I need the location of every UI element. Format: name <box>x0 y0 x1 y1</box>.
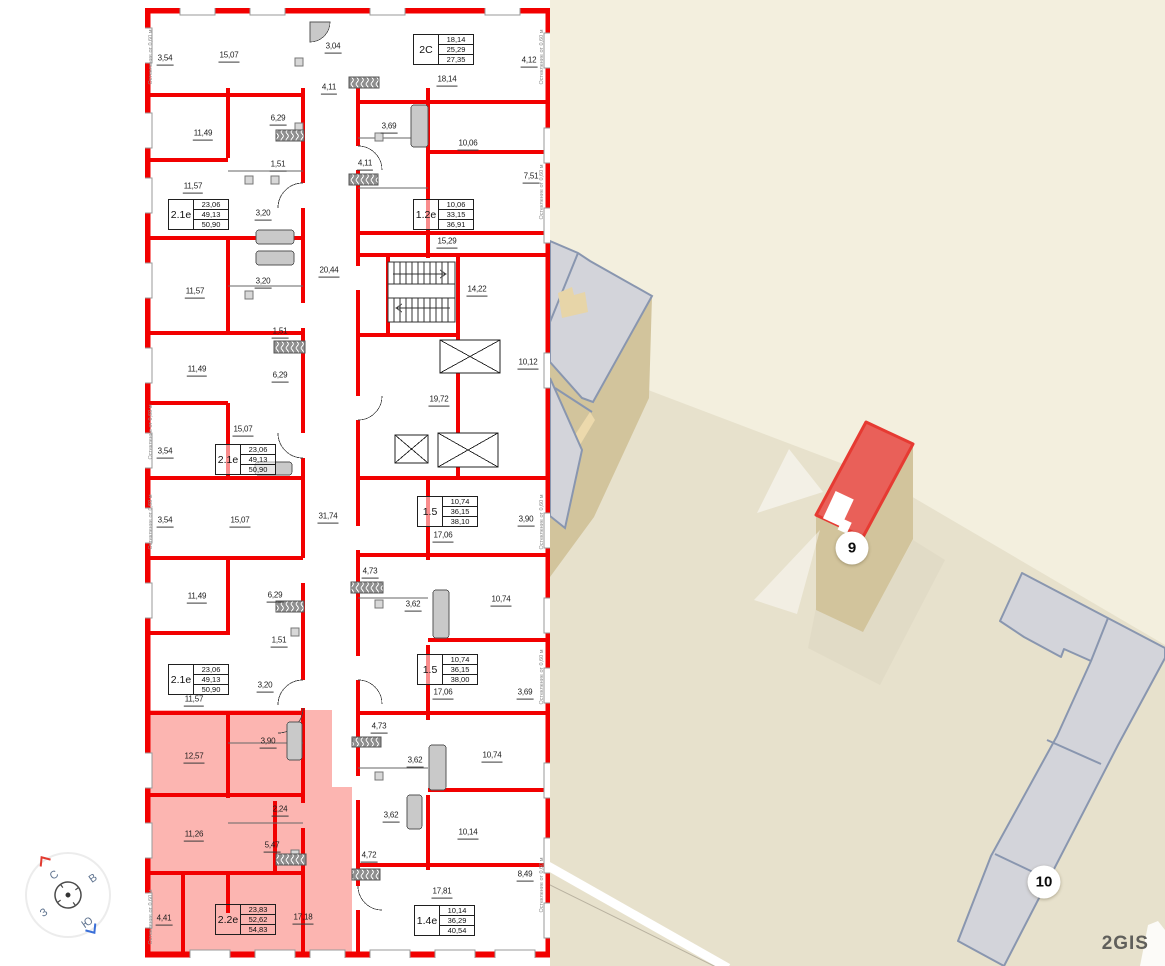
room-area-label: 18,14 <box>436 76 457 87</box>
apartment-areas: 10,7436,1538,00 <box>443 655 477 684</box>
apartment-type-label: 1.5 <box>418 497 443 526</box>
apartment-area-value: 50,90 <box>241 465 275 474</box>
room-area-label: 1,51 <box>272 328 289 339</box>
glazing-note: Остекление от 0,60 м <box>148 30 154 85</box>
apartment-area-value: 25,29 <box>439 45 473 55</box>
room-area-label: 17,06 <box>432 532 453 543</box>
room-area-label: 31,74 <box>317 513 338 524</box>
room-area-label: 3,62 <box>407 757 424 768</box>
glazing-note: Остекление от 0,60 м <box>539 30 545 85</box>
room-area-label: 20,44 <box>318 267 339 278</box>
apartment-area-value: 18,14 <box>439 35 473 45</box>
room-area-label: 1,51 <box>271 637 288 648</box>
apartment-areas: 23,0649,1350,90 <box>241 445 275 474</box>
room-area-label: 4,73 <box>362 568 379 579</box>
map-watermark: 2GIS <box>1102 933 1149 955</box>
room-area-label: 4,72 <box>361 852 378 863</box>
room-area-label: 10,74 <box>481 752 502 763</box>
map-marker-10[interactable]: 10 <box>1028 866 1061 899</box>
compass-rose: С В Ю З <box>10 837 130 957</box>
apartment-area-value: 10,06 <box>439 200 473 210</box>
apartment-area-value: 10,74 <box>443 655 477 665</box>
apartment-type-label: 2.1е <box>169 200 194 229</box>
room-area-label: 4,11 <box>357 160 373 171</box>
stairs <box>388 262 455 322</box>
glazing-note: Остекление от 0,60 м <box>148 890 154 945</box>
room-area-label: 10,12 <box>517 359 538 370</box>
room-area-label: 3,69 <box>517 689 534 700</box>
apartment-area-value: 36,15 <box>443 507 477 517</box>
room-area-label: 5,47 <box>264 842 281 853</box>
room-area-label: 3,90 <box>518 516 535 527</box>
apartment-areas: 10,7436,1538,10 <box>443 497 477 526</box>
room-area-label: 11,57 <box>185 288 205 299</box>
room-area-label: 11,49 <box>187 593 207 604</box>
room-area-label: 6,29 <box>270 115 287 126</box>
glazing-note: Остекление от 0,60 м <box>148 405 154 460</box>
apartment-area-value: 23,06 <box>241 445 275 455</box>
apartment-area-value: 38,10 <box>443 517 477 526</box>
apartment-type-label: 1.2е <box>414 200 439 229</box>
apartment-type-label: 2.1е <box>216 445 241 474</box>
apartment-type-label: 2.1е <box>169 665 194 694</box>
room-area-label: 3,62 <box>383 812 400 823</box>
room-area-label: 17,06 <box>432 689 453 700</box>
room-area-label: 3,69 <box>381 123 398 134</box>
apartment-area-value: 27,35 <box>439 55 473 64</box>
room-area-label: 3,54 <box>157 517 174 528</box>
room-area-label: 3,20 <box>257 682 274 693</box>
apartment-areas: 10,0633,1536,91 <box>439 200 473 229</box>
apartment-area-value: 49,13 <box>241 455 275 465</box>
room-area-label: 6,29 <box>272 372 289 383</box>
room-area-label: 4,11 <box>321 84 337 95</box>
room-area-label: 4,41 <box>156 915 173 926</box>
floorplan-viewer: 3,5415,073,044,1218,144,116,2911,493,691… <box>0 0 1165 966</box>
apartment-spec-table[interactable]: 2.1е23,0649,1350,90 <box>168 199 229 230</box>
room-area-label: 11,57 <box>183 183 203 194</box>
room-area-label: 1,51 <box>270 161 287 172</box>
room-area-label: 3,90 <box>260 738 277 749</box>
room-area-label: 11,26 <box>184 831 204 842</box>
apartment-area-value: 36,29 <box>440 916 474 926</box>
apartment-area-value: 49,13 <box>194 210 228 220</box>
apartment-area-value: 36,91 <box>439 220 473 229</box>
apartment-type-label: 2.2е <box>216 905 241 934</box>
room-area-label: 3,04 <box>325 43 342 54</box>
apartment-areas: 23,0649,1350,90 <box>194 200 228 229</box>
apartment-area-value: 36,15 <box>443 665 477 675</box>
room-area-label: 15,07 <box>229 517 250 528</box>
room-area-label: 8,49 <box>517 871 534 882</box>
map-marker-9[interactable]: 9 <box>836 532 869 565</box>
apartment-area-value: 40,54 <box>440 926 474 935</box>
room-area-label: 17,18 <box>292 914 313 925</box>
apartment-area-value: 49,13 <box>194 675 228 685</box>
room-area-label: 3,20 <box>255 210 272 221</box>
apartment-areas: 18,1425,2927,35 <box>439 35 473 64</box>
room-area-label: 4,12 <box>521 57 538 68</box>
room-area-label: 11,49 <box>187 366 207 377</box>
glazing-note: Остекление от 0,60 м <box>539 650 545 705</box>
room-area-label: 6,29 <box>267 592 284 603</box>
apartment-area-value: 10,74 <box>443 497 477 507</box>
apartment-spec-table[interactable]: 1.2е10,0633,1536,91 <box>413 199 474 230</box>
apartment-spec-table[interactable]: 2.1е23,0649,1350,90 <box>168 664 229 695</box>
apartment-areas: 10,1436,2940,54 <box>440 906 474 935</box>
room-area-label: 11,57 <box>184 696 204 707</box>
apartment-spec-table[interactable]: 2.1е23,0649,1350,90 <box>215 444 276 475</box>
apartment-type-label: 1.5 <box>418 655 443 684</box>
glazing-note: Остекление от 0,60 м <box>539 165 545 220</box>
room-area-label: 15,07 <box>218 52 239 63</box>
apartment-spec-table[interactable]: 2С18,1425,2927,35 <box>413 34 474 65</box>
glazing-note: Остекление от 0,60 м <box>148 495 154 550</box>
apartment-spec-table[interactable]: 1.510,7436,1538,10 <box>417 496 478 527</box>
apartment-area-value: 50,90 <box>194 685 228 694</box>
apartment-spec-table[interactable]: 1.4е10,1436,2940,54 <box>414 905 475 936</box>
room-area-label: 7,51 <box>523 173 540 184</box>
room-area-label: 14,22 <box>466 286 487 297</box>
apartment-area-value: 38,00 <box>443 675 477 684</box>
room-area-label: 4,73 <box>371 723 388 734</box>
room-area-label: 3,54 <box>157 448 174 459</box>
room-area-label: 10,74 <box>490 596 511 607</box>
glazing-note: Остекление от 0,60 м <box>539 858 545 913</box>
apartment-area-value: 52,62 <box>241 915 275 925</box>
room-area-label: 3,62 <box>405 601 422 612</box>
room-area-label: 17,81 <box>431 888 452 899</box>
apartment-spec-table[interactable]: 1.510,7436,1538,00 <box>417 654 478 685</box>
apartment-area-value: 23,06 <box>194 665 228 675</box>
room-area-label: 11,49 <box>193 130 213 141</box>
apartment-type-label: 2С <box>414 35 439 64</box>
glazing-note: Остекление от 0,60 м <box>539 495 545 550</box>
apartment-areas: 23,8352,6254,83 <box>241 905 275 934</box>
apartment-area-value: 33,15 <box>439 210 473 220</box>
room-area-label: 2,24 <box>272 806 289 817</box>
floorplan-canvas <box>145 8 551 958</box>
apartment-type-label: 1.4е <box>415 906 440 935</box>
room-area-label: 10,06 <box>457 140 478 151</box>
room-area-label: 15,29 <box>436 238 457 249</box>
apartment-area-value: 23,06 <box>194 200 228 210</box>
apartment-areas: 23,0649,1350,90 <box>194 665 228 694</box>
apartment-area-value: 10,14 <box>440 906 474 916</box>
apartment-spec-table[interactable]: 2.2е23,8352,6254,83 <box>215 904 276 935</box>
room-area-label: 15,07 <box>232 426 253 437</box>
map-canvas[interactable] <box>550 0 1165 966</box>
room-area-label: 3,54 <box>157 55 174 66</box>
room-area-label: 19,72 <box>428 396 449 407</box>
room-area-label: 10,14 <box>457 829 478 840</box>
apartment-area-value: 50,90 <box>194 220 228 229</box>
room-area-label: 12,57 <box>183 753 204 764</box>
apartment-area-value: 54,83 <box>241 925 275 934</box>
room-area-label: 3,20 <box>255 278 272 289</box>
apartment-area-value: 23,83 <box>241 905 275 915</box>
